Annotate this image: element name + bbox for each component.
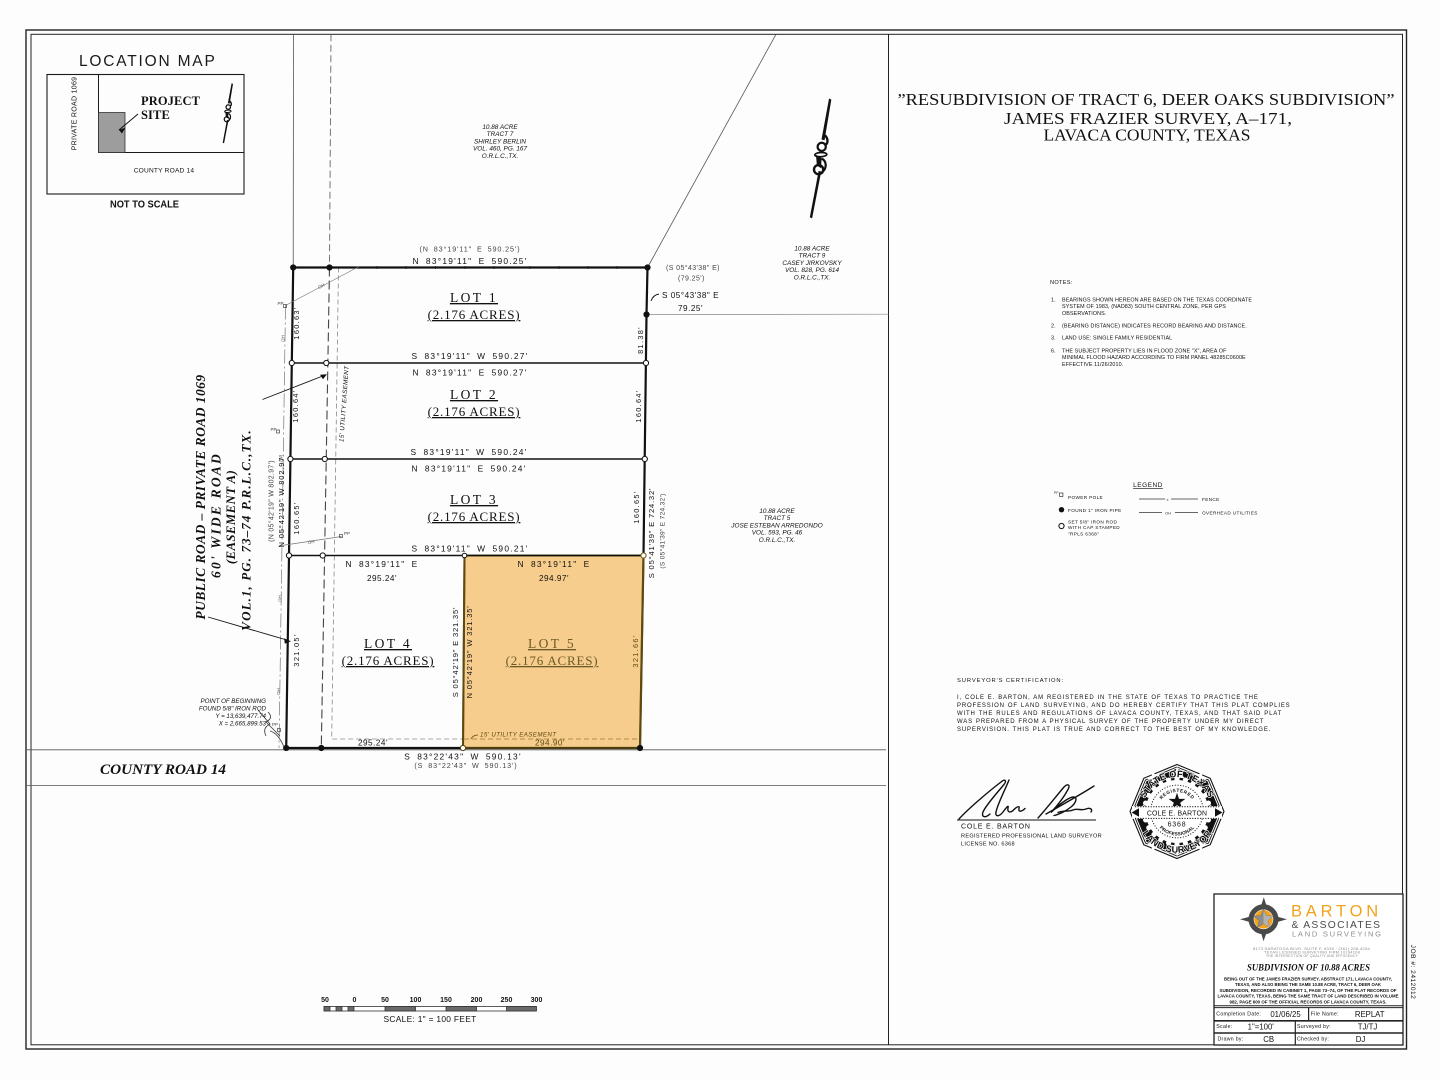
svg-text:LOT 1: LOT 1: [450, 290, 498, 305]
svg-text:BARTON: BARTON: [1291, 903, 1382, 921]
svg-text:OH: OH: [1165, 510, 1171, 515]
svg-text:(S 05°43'38" E): (S 05°43'38" E): [666, 264, 720, 272]
svg-text:LAND SURVEYING: LAND SURVEYING: [1292, 930, 1383, 939]
svg-text:LOT 4: LOT 4: [364, 636, 412, 651]
svg-text:1"=100': 1"=100': [1248, 1023, 1275, 1032]
svg-text:CB: CB: [1263, 1035, 1274, 1044]
svg-text:01/06/25: 01/06/25: [1270, 1010, 1301, 1019]
svg-text:150: 150: [440, 997, 452, 1004]
svg-text:O.R.L.C.,TX.: O.R.L.C.,TX.: [794, 274, 831, 281]
svg-text:PP: PP: [1054, 491, 1059, 495]
svg-text:OH: OH: [278, 595, 283, 602]
svg-text:60' WIDE ROAD: 60' WIDE ROAD: [209, 452, 224, 578]
svg-text:BEARINGS SHOWN HEREON ARE: BEARINGS SHOWN HEREON ARE BASED ON THE T…: [1062, 298, 1252, 304]
svg-text:OBSERVATIONS.: OBSERVATIONS.: [1062, 311, 1106, 317]
svg-text:(EASEMENT A): (EASEMENT A): [224, 470, 238, 564]
svg-text:LOT 3: LOT 3: [450, 492, 498, 507]
svg-text:(N 83°19'11" E 590.25'): (N 83°19'11" E 590.25'): [419, 245, 520, 254]
svg-text:FOUND 5/8" IRON ROD: FOUND 5/8" IRON ROD: [199, 706, 267, 713]
svg-text:SUBDIVISION, RECORDED IN CABIN: SUBDIVISION, RECORDED IN CABINET 1, PAGE…: [1220, 988, 1397, 993]
svg-text:JOB #: 2412012: JOB #: 2412012: [1409, 945, 1416, 1000]
svg-text:200: 200: [471, 997, 483, 1004]
svg-text:LAND USE: SINGLE FAMILY R: LAND USE: SINGLE FAMILY RESIDENTIAL: [1062, 336, 1172, 342]
svg-text:LOT 5: LOT 5: [528, 636, 576, 651]
svg-text:X = 2,665,899.53: X = 2,665,899.53: [218, 721, 267, 728]
svg-text:O.R.L.C.,TX.: O.R.L.C.,TX.: [759, 537, 796, 544]
svg-text:SURVEYOR'S CERTIFICATION:: SURVEYOR'S CERTIFICATION:: [957, 678, 1064, 684]
svg-text:VOL. 593, PG. 46: VOL. 593, PG. 46: [752, 530, 803, 537]
svg-text:WITH THE RULES AND REGULAT: WITH THE RULES AND REGULATIONS OF LAVACA…: [957, 711, 1282, 717]
svg-text:S 83°19'11" W 590.24': S 83°19'11" W 590.24': [411, 447, 528, 457]
svg-text:294.90': 294.90': [535, 739, 565, 748]
svg-text:S 05°41'39" E 724.32': S 05°41'39" E 724.32': [647, 488, 656, 578]
svg-text:(2.176 ACRES): (2.176 ACRES): [428, 509, 521, 524]
svg-text:Surveyed by:: Surveyed by:: [1297, 1024, 1331, 1030]
svg-text:OH: OH: [276, 688, 281, 695]
svg-text:(79.25'): (79.25'): [678, 276, 705, 283]
svg-text:FOUND 1" IRON PIPE: FOUND 1" IRON PIPE: [1068, 508, 1122, 513]
svg-text:PROJECT: PROJECT: [141, 94, 201, 108]
svg-text:10.88 ACRE: 10.88 ACRE: [759, 508, 795, 515]
svg-text:VOL. 460, PG. 167: VOL. 460, PG. 167: [473, 146, 527, 153]
svg-text:N 05°42'19" W 321.35': N 05°42'19" W 321.35': [465, 606, 474, 699]
svg-text:PP: PP: [272, 722, 278, 727]
svg-text:JOSE ESTEBAN ARREDONDO: JOSE ESTEBAN ARREDONDO: [730, 522, 822, 529]
svg-text:160.65': 160.65': [632, 490, 641, 523]
svg-text:(2.176 ACRES): (2.176 ACRES): [428, 404, 521, 419]
svg-text:BEING OUT OF THE JAMES FRAZIER: BEING OUT OF THE JAMES FRAZIER SURVEY, A…: [1224, 977, 1392, 982]
svg-text:321.05': 321.05': [292, 633, 301, 666]
svg-text:OVERHEAD UTILITIES: OVERHEAD UTILITIES: [1202, 510, 1258, 515]
svg-text:300: 300: [531, 997, 543, 1004]
svg-text:LAVACA COUNTY, TEXAS: LAVACA COUNTY, TEXAS: [1044, 126, 1251, 145]
svg-text:PP: PP: [271, 427, 277, 432]
svg-text:SET 5/8" IRON ROD: SET 5/8" IRON ROD: [1068, 520, 1117, 525]
svg-text:SUBDIVISION OF 10.88 ACRES: SUBDIVISION OF 10.88 ACRES: [1247, 963, 1370, 973]
svg-text:15' UTILITY EASEMENT: 15' UTILITY EASEMENT: [480, 732, 557, 739]
svg-text:79.25': 79.25': [678, 304, 703, 313]
svg-text:TJ/TJ: TJ/TJ: [1358, 1023, 1378, 1032]
svg-text:2.: 2.: [1051, 324, 1056, 330]
svg-text:SITE: SITE: [141, 108, 170, 122]
svg-text:N 83°19'11" E 590.25': N 83°19'11" E 590.25': [412, 256, 527, 266]
svg-text:Checked by:: Checked by:: [1297, 1037, 1329, 1043]
svg-text:(2.176 ACRES): (2.176 ACRES): [342, 653, 435, 668]
svg-text:160.63': 160.63': [292, 306, 301, 339]
svg-text:982, PAGE 600 OF THE OFFICIAL: 982, PAGE 600 OF THE OFFICIAL RECORDS OF…: [1230, 999, 1387, 1004]
svg-text:PRIVATE ROAD 1069: PRIVATE ROAD 1069: [72, 77, 79, 151]
svg-text:Y = 13,639,477.74: Y = 13,639,477.74: [215, 713, 266, 720]
svg-text:160.64': 160.64': [291, 389, 300, 422]
svg-text:SCALE: 1" = 100 FEET: SCALE: 1" = 100 FEET: [384, 1014, 477, 1024]
svg-text:PP: PP: [344, 531, 350, 536]
svg-text:50: 50: [381, 997, 389, 1004]
svg-text:250: 250: [501, 997, 513, 1004]
svg-text:N 05°42'19" W 802.97': N 05°42'19" W 802.97': [277, 455, 286, 548]
svg-text:(BEARING DISTANCE) INDICATES: (BEARING DISTANCE) INDICATES RECORD BEAR…: [1062, 324, 1247, 330]
svg-text:S 05°43'38" E: S 05°43'38" E: [662, 291, 719, 300]
svg-text:6.: 6.: [1051, 349, 1056, 355]
svg-text:NOT TO SCALE: NOT TO SCALE: [110, 200, 179, 211]
svg-text:N 83°19'11" E 590.24': N 83°19'11" E 590.24': [411, 464, 526, 474]
svg-text:Completion Date:: Completion Date:: [1216, 1011, 1261, 1017]
svg-text:TRACT 5: TRACT 5: [764, 515, 791, 522]
svg-text:N 83°19'11" E 590.27': N 83°19'11" E 590.27': [412, 368, 527, 378]
svg-text:(S 83°22'43" W 590.13'): (S 83°22'43" W 590.13'): [414, 761, 517, 770]
svg-text:”RESUBDIVISION OF TRACT 6,: ”RESUBDIVISION OF TRACT 6, DEER OAKS SUB…: [898, 90, 1395, 109]
svg-text:I, COLE E. BARTON, AM REG: I, COLE E. BARTON, AM REGISTERED IN THE …: [957, 695, 1259, 701]
svg-text:x: x: [1167, 497, 1169, 502]
svg-text:10.88 ACRE: 10.88 ACRE: [482, 124, 518, 131]
svg-text:295.24': 295.24': [367, 574, 397, 583]
svg-text:"RPLS 6368": "RPLS 6368": [1068, 532, 1099, 537]
svg-text:TRACT 9: TRACT 9: [799, 253, 826, 260]
svg-text:SHIRLEY BERLIN: SHIRLEY BERLIN: [474, 138, 526, 145]
svg-text:THE INTERSECTION OF QUALITY AN: THE INTERSECTION OF QUALITY AND EFFICIEN…: [1266, 954, 1358, 958]
svg-text:N 83°19'11" E: N 83°19'11" E: [346, 559, 419, 569]
svg-text:O.R.L.C.,TX.: O.R.L.C.,TX.: [482, 153, 519, 160]
svg-text:3.: 3.: [1051, 336, 1056, 342]
svg-text:COLE E. BARTON: COLE E. BARTON: [961, 824, 1031, 831]
svg-text:Drawn by:: Drawn by:: [1218, 1037, 1244, 1043]
svg-text:(2.176 ACRES): (2.176 ACRES): [428, 307, 521, 322]
svg-text:REGISTERED PROFESSIONAL LAND: REGISTERED PROFESSIONAL LAND SURVEYOR: [961, 833, 1102, 839]
svg-text:160.65': 160.65': [292, 501, 301, 534]
svg-text:LOCATION MAP: LOCATION MAP: [79, 53, 217, 70]
svg-text:MINIMAL FLOOD HAZARD ACCORD: MINIMAL FLOOD HAZARD ACCORDING TO FIRM P…: [1062, 355, 1246, 361]
svg-text:100: 100: [410, 997, 422, 1004]
svg-text:WITH CAP STAMPED: WITH CAP STAMPED: [1068, 525, 1120, 530]
svg-text:File Name:: File Name:: [1311, 1011, 1339, 1017]
svg-text:294.97': 294.97': [539, 574, 569, 583]
svg-text:S 05°42'19" E 321.35': S 05°42'19" E 321.35': [451, 607, 460, 697]
svg-text:OH: OH: [281, 335, 286, 342]
svg-text:10.88 ACRE: 10.88 ACRE: [794, 246, 830, 253]
svg-text:POINT OF BEGINNING: POINT OF BEGINNING: [200, 698, 266, 705]
svg-text:NOTES:: NOTES:: [1050, 280, 1073, 286]
svg-text:COUNTY ROAD 14: COUNTY ROAD 14: [100, 761, 226, 778]
svg-text:OH: OH: [307, 539, 314, 545]
svg-text:SYSTEM OF 1983, (NAD83) SO: SYSTEM OF 1983, (NAD83) SOUTH CENTRAL ZO…: [1062, 304, 1226, 310]
svg-text:LEGEND: LEGEND: [1133, 482, 1163, 489]
svg-text:S 83°19'11" W 590.27': S 83°19'11" W 590.27': [412, 351, 529, 361]
svg-text:Scale:: Scale:: [1216, 1024, 1232, 1030]
svg-text:1.: 1.: [1051, 298, 1056, 304]
svg-text:6368: 6368: [1168, 822, 1187, 829]
svg-text:THE SUBJECT PROPERTY LIES: THE SUBJECT PROPERTY LIES IN FLOOD ZONE …: [1062, 349, 1227, 355]
svg-text:EFFECTIVE 11/26/2010.: EFFECTIVE 11/26/2010.: [1062, 362, 1123, 368]
svg-text:295.24': 295.24': [358, 739, 388, 748]
svg-text:LAVACA COUNTY, TEXAS, BEING TH: LAVACA COUNTY, TEXAS, BEING THE SAME TRA…: [1218, 994, 1399, 999]
svg-text:50: 50: [321, 997, 329, 1004]
svg-text:VOL.1, PG. 73–74 P.R.L.C.,T: VOL.1, PG. 73–74 P.R.L.C.,TX.: [239, 429, 254, 630]
svg-text:0: 0: [353, 997, 357, 1004]
svg-text:81.38': 81.38': [636, 326, 645, 354]
svg-text:DJ: DJ: [1356, 1035, 1366, 1044]
svg-text:(N 05°42'19" W 802.97'): (N 05°42'19" W 802.97'): [268, 460, 276, 542]
svg-text:SUPERVISION. THIS PLAT IS: SUPERVISION. THIS PLAT IS TRUE AND CORRE…: [957, 727, 1271, 733]
svg-text:S 83°22'43" W 590.13': S 83°22'43" W 590.13': [404, 752, 522, 762]
svg-text:COLE E. BARTON: COLE E. BARTON: [1147, 810, 1207, 817]
svg-text:POWER POLE: POWER POLE: [1068, 495, 1103, 500]
svg-text:REPLAT: REPLAT: [1355, 1010, 1385, 1019]
svg-text:COUNTY ROAD 14: COUNTY ROAD 14: [134, 168, 195, 175]
svg-text:(2.176 ACRES): (2.176 ACRES): [506, 653, 599, 668]
svg-text:PP: PP: [278, 301, 284, 306]
svg-text:N 83°19'11" E: N 83°19'11" E: [518, 559, 591, 569]
svg-text:160.64': 160.64': [634, 389, 643, 422]
svg-text:PUBLIC ROAD – PRIVATE ROAD: PUBLIC ROAD – PRIVATE ROAD 1069: [193, 374, 208, 619]
svg-text:WAS PREPARED FROM A PHYSIC: WAS PREPARED FROM A PHYSICAL SURVEY OF T…: [957, 719, 1264, 725]
svg-text:VOL. 828, PG. 614: VOL. 828, PG. 614: [785, 267, 839, 274]
svg-text:PROFESSION OF LAND SURVEYIN: PROFESSION OF LAND SURVEYING, AND DO HER…: [957, 703, 1291, 709]
svg-text:S 83°19'11" W 590.21': S 83°19'11" W 590.21': [412, 544, 529, 554]
svg-text:(S 05°41'39" E 724.32'): (S 05°41'39" E 724.32'): [659, 493, 667, 568]
svg-text:LICENSE NO. 6368: LICENSE NO. 6368: [961, 842, 1015, 848]
svg-text:TEXAS, AND ALSO BEING THE SAME: TEXAS, AND ALSO BEING THE SAME 10.88 ACR…: [1235, 982, 1382, 987]
svg-text:CASEY JIRKOVSKY: CASEY JIRKOVSKY: [782, 260, 842, 267]
svg-text:FENCE: FENCE: [1202, 497, 1220, 502]
svg-text:LOT 2: LOT 2: [450, 387, 498, 402]
svg-text:TRACT 7: TRACT 7: [487, 131, 514, 138]
svg-text:321.66': 321.66': [631, 634, 640, 667]
